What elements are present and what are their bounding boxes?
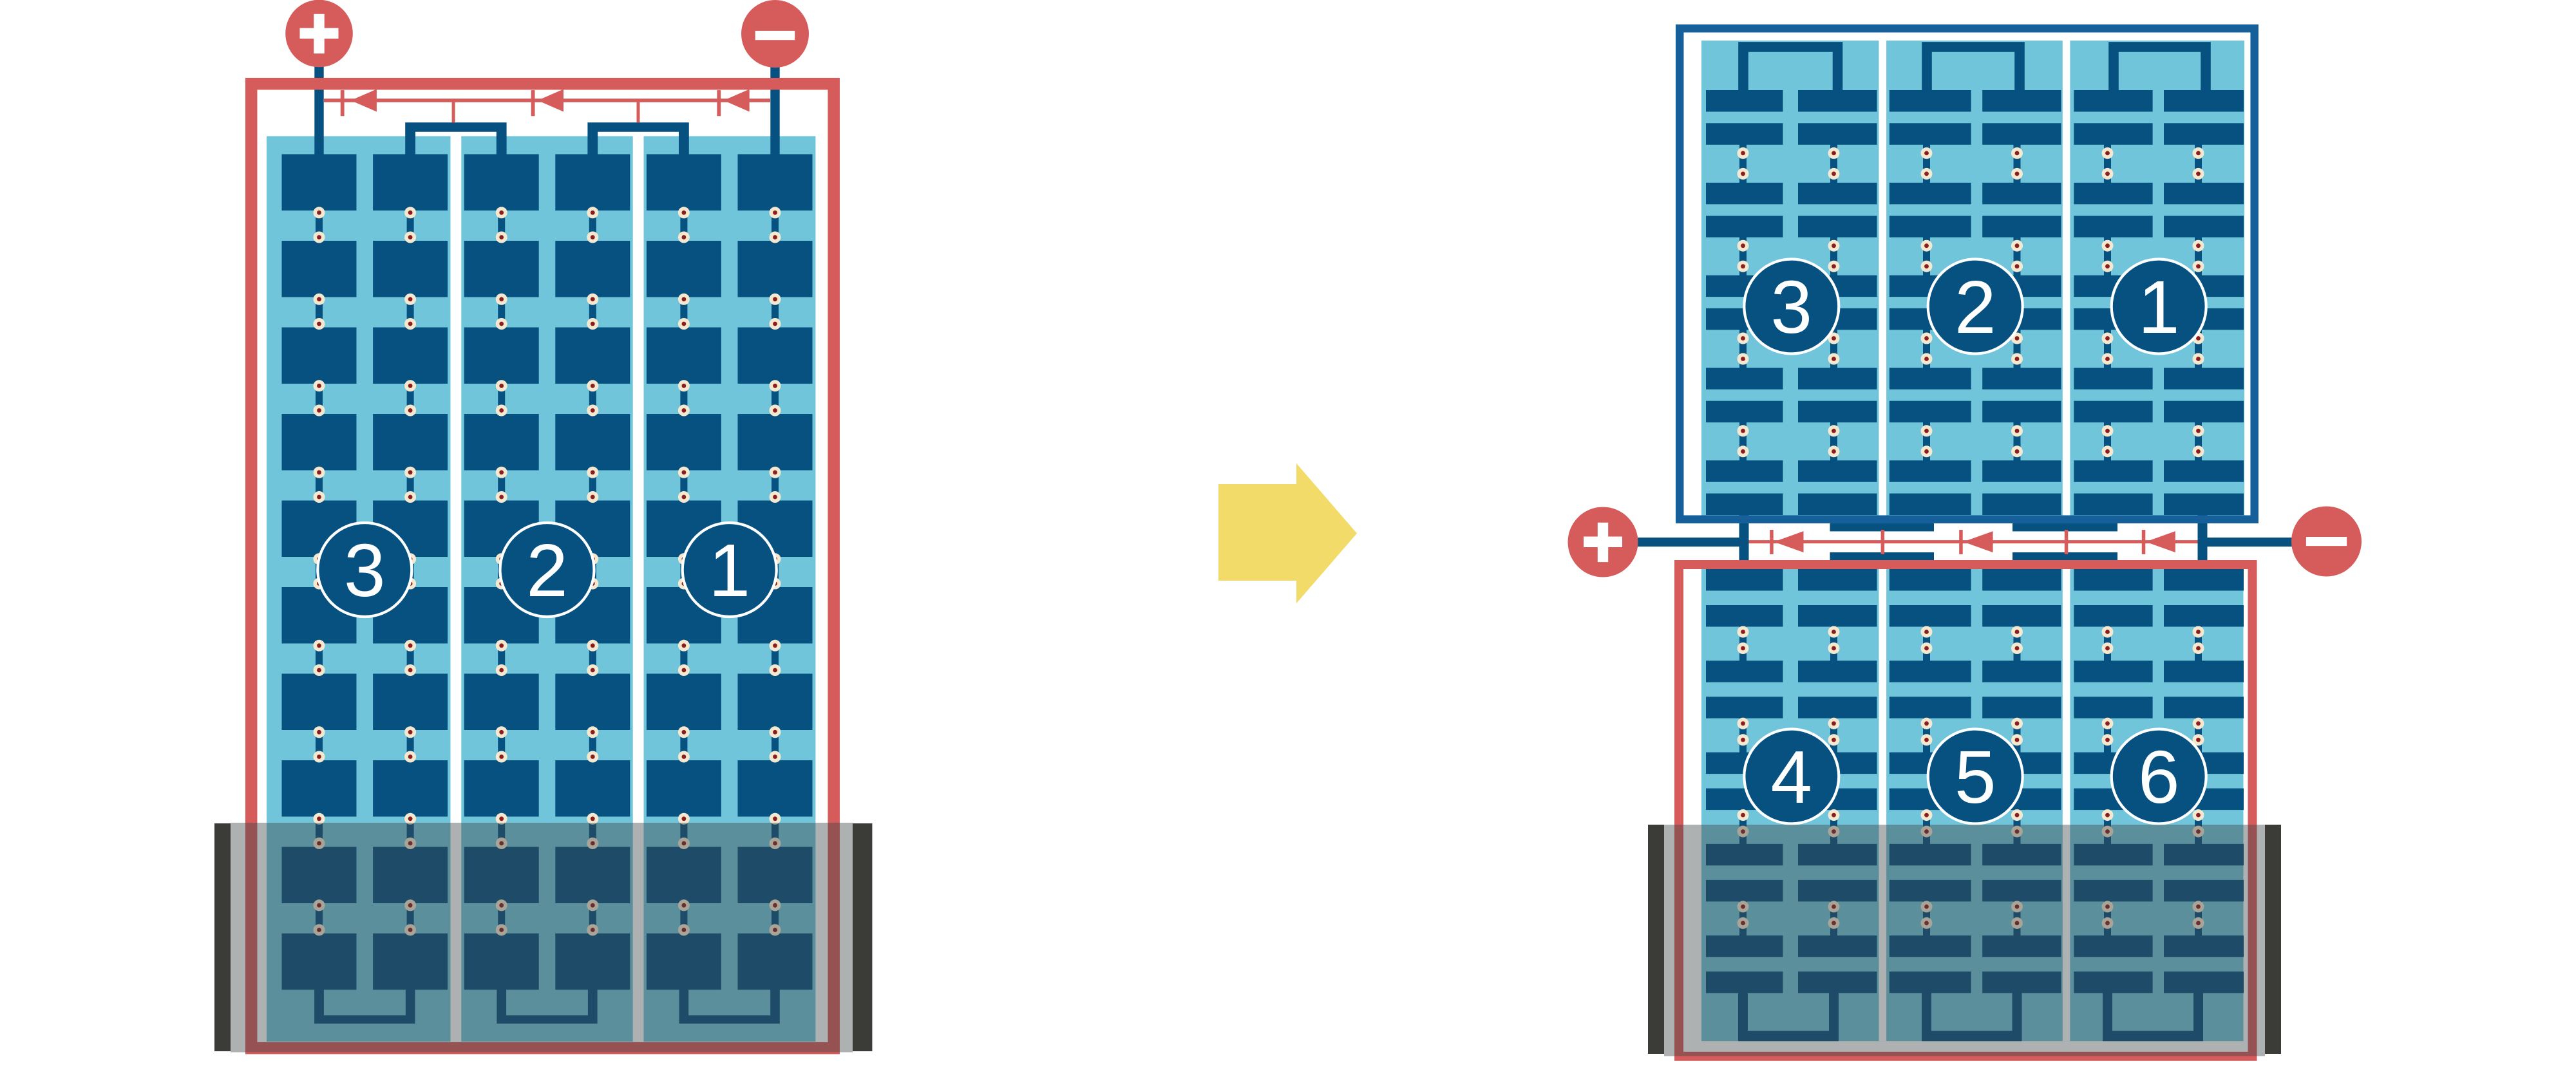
svg-text:1: 1 [2138,265,2180,349]
svg-text:5: 5 [1955,735,1996,819]
svg-text:6: 6 [2138,735,2180,819]
svg-text:1: 1 [708,529,750,612]
svg-text:2: 2 [1955,265,1996,349]
svg-text:3: 3 [344,529,386,612]
svg-text:4: 4 [1771,735,1813,819]
svg-text:2: 2 [526,529,568,612]
svg-text:3: 3 [1771,265,1813,349]
